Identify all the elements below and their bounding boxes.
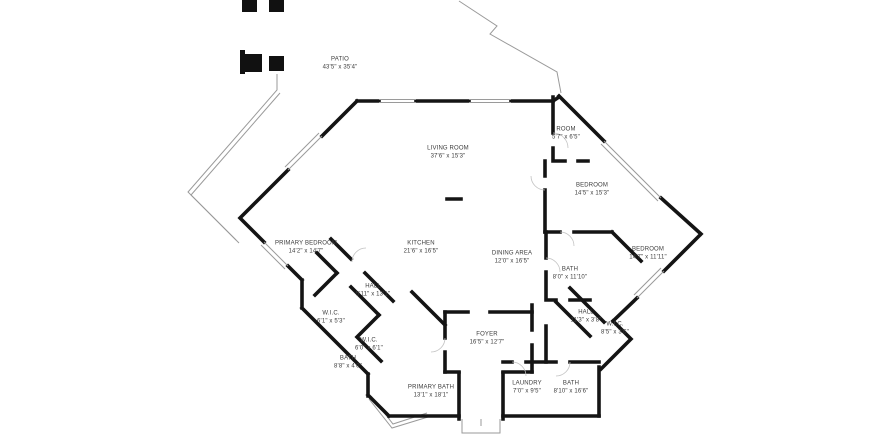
room-dims: 11'3" x 3'8" bbox=[571, 317, 602, 325]
room-label-living-room: LIVING ROOM 37'6" x 15'3" bbox=[427, 146, 469, 161]
room-name: HALL bbox=[356, 284, 390, 292]
room-dims: 14'7" x 11'11" bbox=[629, 254, 666, 262]
room-name: BEDROOM bbox=[629, 247, 666, 255]
room-dims: 7'0" x 9'5" bbox=[512, 388, 542, 396]
room-label-primary-bath: PRIMARY BATH 13'1" x 18'1" bbox=[408, 385, 454, 400]
room-name: BATH bbox=[553, 267, 587, 275]
room-label-bedroom-ne: BEDROOM 14'5" x 15'3" bbox=[575, 183, 610, 198]
room-name: BATH bbox=[554, 381, 589, 389]
door-arcs bbox=[352, 133, 574, 376]
room-dims: 8'0" x 11'10" bbox=[553, 274, 587, 282]
room-label-kitchen: KITCHEN 21'6" x 16'5" bbox=[404, 241, 439, 256]
room-name: DINING AREA bbox=[492, 251, 532, 259]
patio-posts bbox=[240, 0, 284, 74]
room-label-bedroom-e: BEDROOM 14'7" x 11'11" bbox=[629, 247, 666, 262]
room-label-wic-w2: W.I.C. 6'0" x 6'1" bbox=[355, 338, 383, 353]
room-label-bath-se: BATH 8'10" x 16'6" bbox=[554, 381, 589, 396]
room-dims: 8'5" x 3'6" bbox=[601, 329, 629, 337]
room-label-laundry: LAUNDRY 7'0" x 9'5" bbox=[512, 381, 542, 396]
room-label-foyer: FOYER 16'5" x 12'7" bbox=[470, 332, 505, 347]
room-name: PATIO bbox=[323, 57, 358, 65]
room-label-dining-area: DINING AREA 12'0" x 16'5" bbox=[492, 251, 532, 266]
room-name: KITCHEN bbox=[404, 241, 439, 249]
room-dims: 12'0" x 16'5" bbox=[492, 258, 532, 266]
room-label-primary-bedroom: PRIMARY BEDROOM 14'2" x 14'7" bbox=[275, 241, 337, 256]
room-name: ROOM bbox=[552, 127, 580, 135]
room-name: W.I.C. bbox=[601, 322, 629, 330]
room-name: W.I.C. bbox=[355, 338, 383, 346]
room-dims: 6'0" x 6'1" bbox=[355, 345, 383, 353]
room-name: LAUNDRY bbox=[512, 381, 542, 389]
room-name: PRIMARY BEDROOM bbox=[275, 241, 337, 249]
room-label-wic-e: W.I.C. 8'5" x 3'6" bbox=[601, 322, 629, 337]
room-name: HALL bbox=[571, 310, 602, 318]
room-dims: 14'5" x 15'3" bbox=[575, 190, 610, 198]
room-dims: 37'6" x 15'3" bbox=[427, 153, 469, 161]
room-name: PRIMARY BATH bbox=[408, 385, 454, 393]
room-label-bath-w: BATH 8'8" x 4'0" bbox=[334, 356, 362, 371]
floor-plan-drawing bbox=[0, 0, 890, 440]
room-dims: 14'2" x 14'7" bbox=[275, 248, 337, 256]
room-dims: 5'11" x 13'1" bbox=[356, 291, 390, 299]
room-label-hall-w: HALL 5'11" x 13'1" bbox=[356, 284, 390, 299]
room-label-patio: PATIO 43'5" x 35'4" bbox=[323, 57, 358, 72]
room-name: W.I.C. bbox=[317, 311, 345, 319]
room-dims: 5'7" x 6'5" bbox=[552, 134, 580, 142]
room-name: BATH bbox=[334, 356, 362, 364]
room-name: FOYER bbox=[470, 332, 505, 340]
room-dims: 13'1" x 18'1" bbox=[408, 392, 454, 400]
room-dims: 21'6" x 16'5" bbox=[404, 248, 439, 256]
room-dims: 6'1" x 5'3" bbox=[317, 318, 345, 326]
room-label-room: ROOM 5'7" x 6'5" bbox=[552, 127, 580, 142]
room-label-bath-e: BATH 8'0" x 11'10" bbox=[553, 267, 587, 282]
room-name: LIVING ROOM bbox=[427, 146, 469, 154]
room-name: BEDROOM bbox=[575, 183, 610, 191]
room-dims: 8'8" x 4'0" bbox=[334, 363, 362, 371]
room-dims: 8'10" x 16'6" bbox=[554, 388, 589, 396]
room-label-wic-w1: W.I.C. 6'1" x 5'3" bbox=[317, 311, 345, 326]
room-label-hall-e: HALL 11'3" x 3'8" bbox=[571, 310, 602, 325]
floor-plan: PATIO 43'5" x 35'4" LIVING ROOM 37'6" x … bbox=[0, 0, 890, 440]
room-dims: 16'5" x 12'7" bbox=[470, 339, 505, 347]
room-dims: 43'5" x 35'4" bbox=[323, 64, 358, 72]
